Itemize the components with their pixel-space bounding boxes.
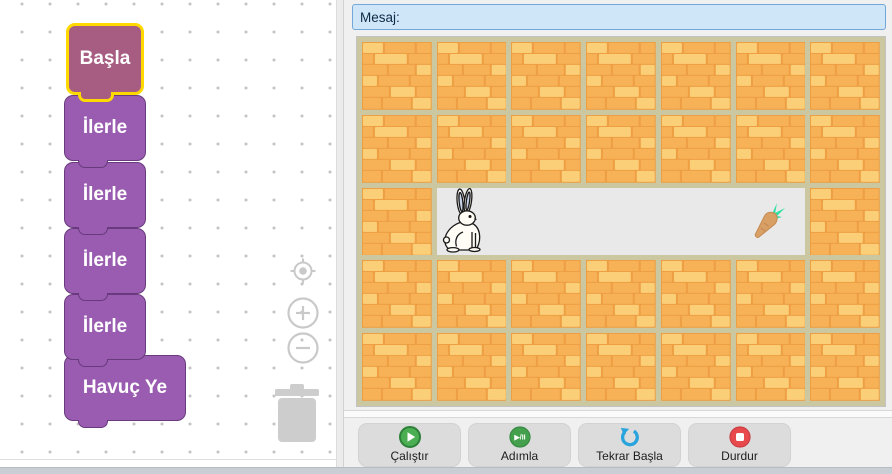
- wall-tile: [661, 115, 731, 183]
- wall-tile: [362, 333, 432, 401]
- wall-tile: [511, 333, 581, 401]
- plus-icon: [287, 297, 319, 329]
- step-button[interactable]: ▶/II Adımla: [468, 423, 571, 467]
- wall-tile: [586, 42, 656, 110]
- zoom-reset-button[interactable]: [289, 257, 317, 285]
- restart-icon: [619, 426, 641, 448]
- block-ilerle-1[interactable]: İlerle: [64, 95, 146, 161]
- stage: [356, 36, 886, 407]
- zoom-out-button[interactable]: [287, 332, 319, 364]
- app-root: Başla İlerle İlerle İlerle İlerle Havuç …: [0, 0, 892, 474]
- wall-tile: [810, 188, 880, 256]
- wall-tile: [362, 260, 432, 328]
- path-tile: [506, 188, 581, 256]
- wall-tile: [511, 260, 581, 328]
- wall-tile: [586, 115, 656, 183]
- wall-tile: [736, 42, 806, 110]
- step-icon: ▶/II: [509, 426, 531, 448]
- trash-can[interactable]: [274, 384, 320, 444]
- stage-controls-divider: [344, 410, 892, 418]
- block-label: Havuç Ye: [83, 377, 167, 399]
- rabbit-sprite: [441, 188, 493, 254]
- play-icon: [399, 426, 421, 448]
- block-ilerle-4[interactable]: İlerle: [64, 294, 146, 360]
- wall-tile: [810, 260, 880, 328]
- run-button[interactable]: Çalıştır: [358, 423, 461, 467]
- wall-tile: [437, 42, 507, 110]
- panel-divider: [336, 0, 344, 467]
- wall-tile: [437, 115, 507, 183]
- wall-tile: [362, 188, 432, 256]
- button-label: Çalıştır: [390, 449, 428, 463]
- wall-tile: [810, 333, 880, 401]
- svg-text:▶/II: ▶/II: [513, 435, 525, 442]
- wall-tile: [586, 260, 656, 328]
- message-bar: Mesaj:: [352, 4, 886, 30]
- block-ilerle-2[interactable]: İlerle: [64, 162, 146, 228]
- wall-tile: [661, 333, 731, 401]
- block-label: İlerle: [83, 316, 127, 338]
- wall-tile: [586, 333, 656, 401]
- control-bar: Çalıştır ▶/II Adımla Tekr: [344, 422, 892, 467]
- block-basla[interactable]: Başla: [66, 23, 144, 95]
- path-tile: [437, 188, 507, 256]
- block-label: İlerle: [83, 117, 127, 139]
- wall-tile: [736, 115, 806, 183]
- minus-icon: [287, 332, 319, 364]
- window-bottom-strip: [0, 467, 892, 474]
- zoom-in-button[interactable]: [287, 297, 319, 329]
- stop-icon: [729, 426, 751, 448]
- wall-tile: [736, 260, 806, 328]
- path-tile: [656, 188, 731, 256]
- wall-tile: [810, 115, 880, 183]
- game-panel: Mesaj:: [344, 0, 892, 467]
- wall-tile: [736, 333, 806, 401]
- stage-grid: [357, 37, 885, 406]
- crosshair-icon: [289, 257, 317, 285]
- block-label: Başla: [80, 48, 131, 70]
- button-label: Adımla: [501, 449, 538, 463]
- wall-tile: [661, 42, 731, 110]
- message-label: Mesaj:: [360, 10, 400, 25]
- button-label: Durdur: [721, 449, 758, 463]
- trash-icon: [274, 384, 320, 444]
- wall-tile: [362, 115, 432, 183]
- carrot-sprite: [750, 202, 786, 240]
- wall-tile: [437, 333, 507, 401]
- block-workspace[interactable]: Başla İlerle İlerle İlerle İlerle Havuç …: [0, 0, 336, 459]
- wall-tile: [511, 115, 581, 183]
- wall-tile: [661, 260, 731, 328]
- wall-tile: [810, 42, 880, 110]
- stop-button[interactable]: Durdur: [688, 423, 791, 467]
- path-tile: [581, 188, 656, 256]
- block-label: İlerle: [83, 250, 127, 272]
- restart-button[interactable]: Tekrar Başla: [578, 423, 681, 467]
- wall-tile: [511, 42, 581, 110]
- button-label: Tekrar Başla: [596, 449, 663, 463]
- wall-tile: [437, 260, 507, 328]
- path-tile: [731, 188, 806, 256]
- wall-tile: [362, 42, 432, 110]
- block-label: İlerle: [83, 184, 127, 206]
- block-ilerle-3[interactable]: İlerle: [64, 228, 146, 294]
